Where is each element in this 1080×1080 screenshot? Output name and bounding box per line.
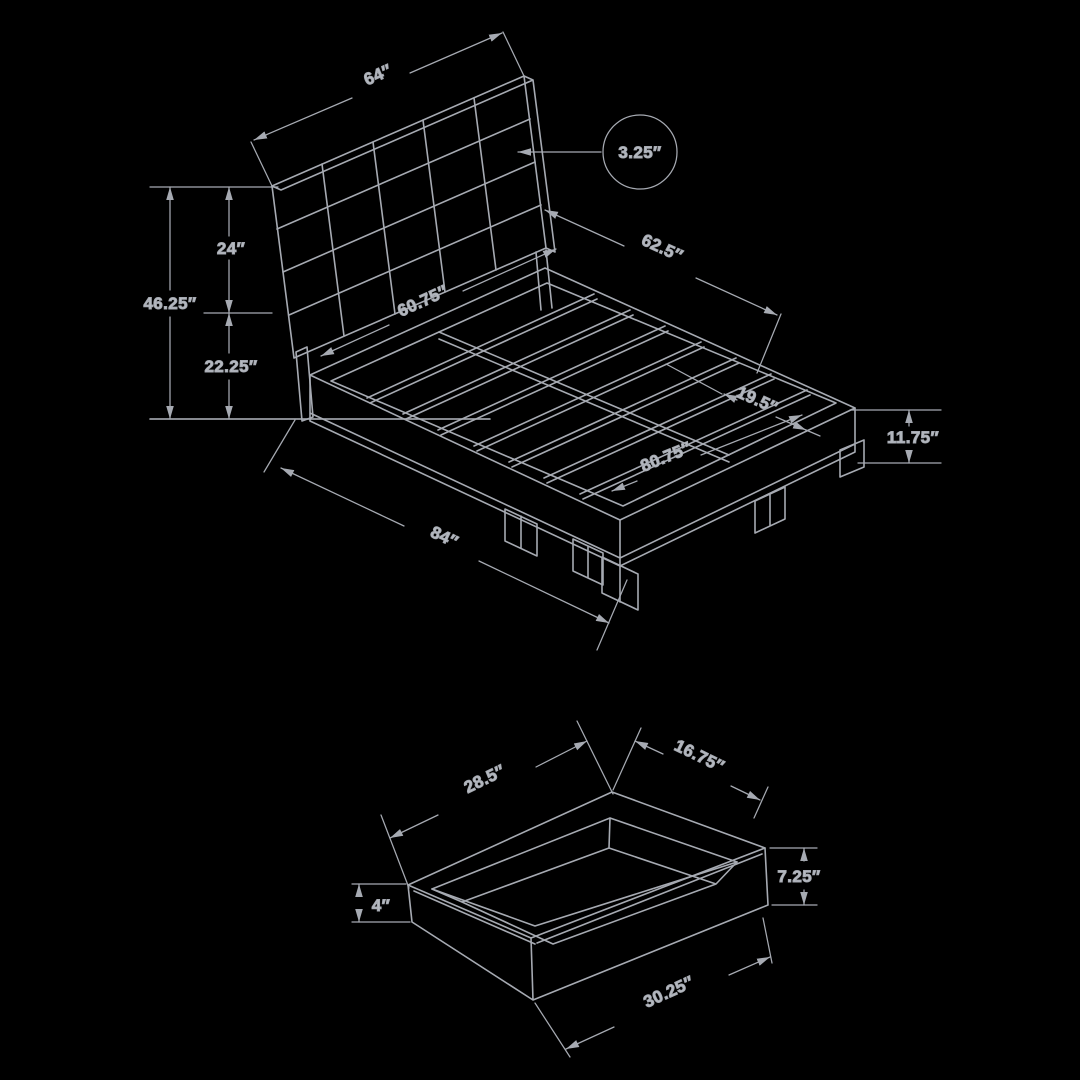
extension-line [757,314,781,373]
dim-label-base-height: 22.25″ [204,357,257,376]
frame-right-foot [840,440,864,477]
dimension-line [566,1027,614,1049]
dim-label-drawer-inner-depth: 16.75″ [671,736,727,776]
dimension-line [281,468,404,526]
drawer-dimensions: 28.5″ 16.75″ 7.25″ 4″ 30.25″ [352,721,821,1057]
dim-drawer-side-height: 7.25″ [770,848,821,905]
bed-dimensions-diagram: 64″ 3.25″ 46.25″ 24″ 22.25″ 62.5″ [0,0,1080,1080]
dimension-line [536,741,587,767]
drawer-outer-walls [408,848,768,1000]
headboard [272,76,555,421]
dimension-line [410,33,502,73]
dim-label-rail-height: 11.75″ [887,428,939,447]
dim-label-total-height: 46.25″ [143,294,196,313]
dim-label-headboard-width: 64″ [361,61,394,90]
dim-label-headboard-thickness: 3.25″ [618,143,661,162]
dim-headboard-thickness: 3.25″ [518,115,677,189]
dimension-line [612,481,637,491]
dim-label-interior-length: 80.75″ [638,438,694,476]
dim-slat-area-width: 60.75″ [321,249,556,356]
dim-interior-length: 80.75″ [612,415,802,491]
dimension-line [696,278,777,315]
dimension-line [390,815,438,838]
dimension-line [479,561,609,623]
dimension-line [635,741,663,754]
drawer-drawing [408,792,768,1000]
diagram-canvas: 64″ 3.25″ 46.25″ 24″ 22.25″ 62.5″ [0,0,1080,1080]
frame-corner-leg [602,557,638,610]
dimension-line [321,325,389,356]
dimension-line [729,957,770,975]
dim-label-drawer-inner-width: 28.5″ [461,761,508,797]
dim-drawer-outer-length: 30.25″ [535,918,772,1057]
dimension-line [254,98,352,140]
dim-deck-width: 62.5″ [545,210,781,373]
dim-label-headboard-panel-height: 24″ [217,239,245,258]
bed-frame [310,268,864,610]
dim-drawer-inner-depth: 16.75″ [613,728,768,818]
headboard-right-post [536,250,552,310]
drawer-interior-bottom [432,818,737,944]
drawer-box [408,792,768,1000]
dim-label-drawer-front-height: 4″ [372,896,390,915]
bed-dimensions: 64″ 3.25″ 46.25″ 24″ 22.25″ 62.5″ [143,32,941,650]
dim-label-deck-width: 62.5″ [639,230,686,265]
dim-label-drawer-outer-length: 30.25″ [641,972,697,1011]
frame-leg [755,487,785,533]
dim-label-overall-length: 84″ [428,522,462,551]
dimension-line [545,210,624,246]
dim-drawer-front-height: 4″ [352,884,410,922]
dimension-line [731,786,760,800]
drawer-rim-outer [408,792,765,938]
dim-label-drawer-side-height: 7.25″ [777,867,820,886]
headboard-top-edge [272,76,555,252]
